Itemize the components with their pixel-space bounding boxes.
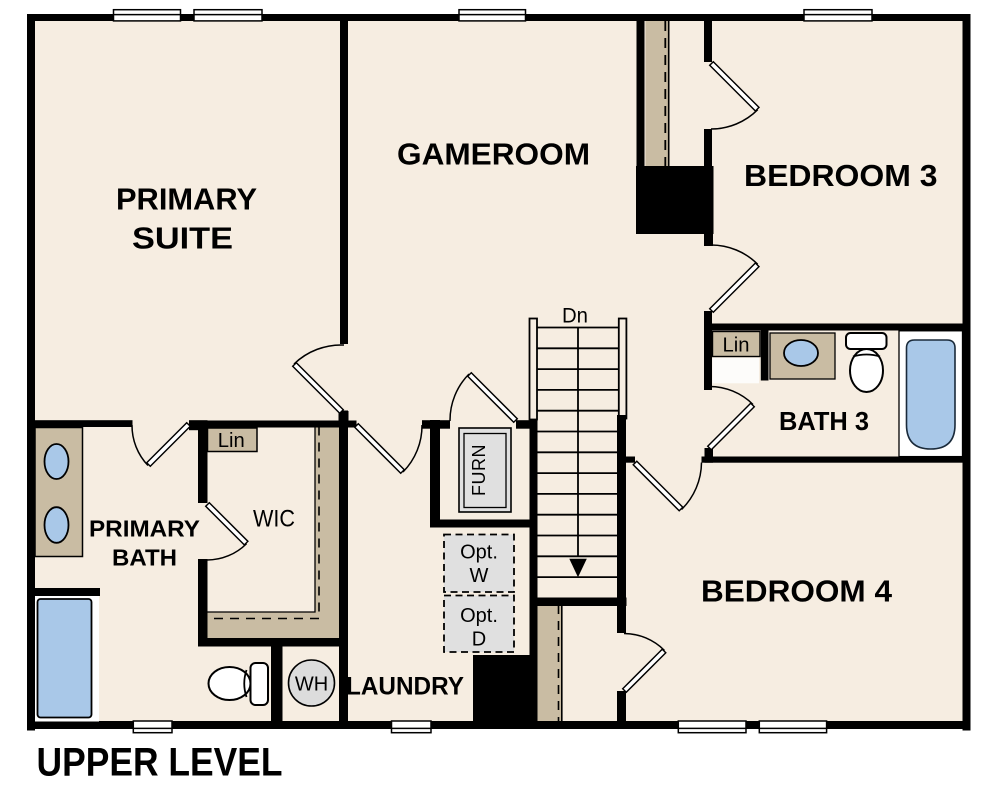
svg-text:WIC: WIC <box>253 506 295 533</box>
svg-text:LAUNDRY: LAUNDRY <box>346 673 464 701</box>
svg-text:Dn: Dn <box>562 304 588 327</box>
svg-text:PRIMARY: PRIMARY <box>89 516 200 542</box>
svg-text:BATH 3: BATH 3 <box>779 406 869 436</box>
svg-text:FURN: FURN <box>469 444 489 496</box>
svg-text:W: W <box>470 565 489 587</box>
svg-text:BEDROOM 4: BEDROOM 4 <box>701 573 893 608</box>
svg-text:PRIMARY: PRIMARY <box>116 183 257 217</box>
svg-text:GAMEROOM: GAMEROOM <box>397 137 590 172</box>
svg-text:SUITE: SUITE <box>132 222 233 256</box>
svg-text:BEDROOM 3: BEDROOM 3 <box>744 158 938 193</box>
svg-text:D: D <box>472 629 486 651</box>
svg-text:Lin: Lin <box>723 334 750 357</box>
svg-text:Opt.: Opt. <box>460 542 498 564</box>
svg-text:Opt.: Opt. <box>460 605 498 627</box>
svg-text:Lin: Lin <box>218 429 245 452</box>
svg-text:WH: WH <box>295 674 328 696</box>
svg-text:UPPER LEVEL: UPPER LEVEL <box>37 740 283 784</box>
svg-text:BATH: BATH <box>112 545 177 571</box>
